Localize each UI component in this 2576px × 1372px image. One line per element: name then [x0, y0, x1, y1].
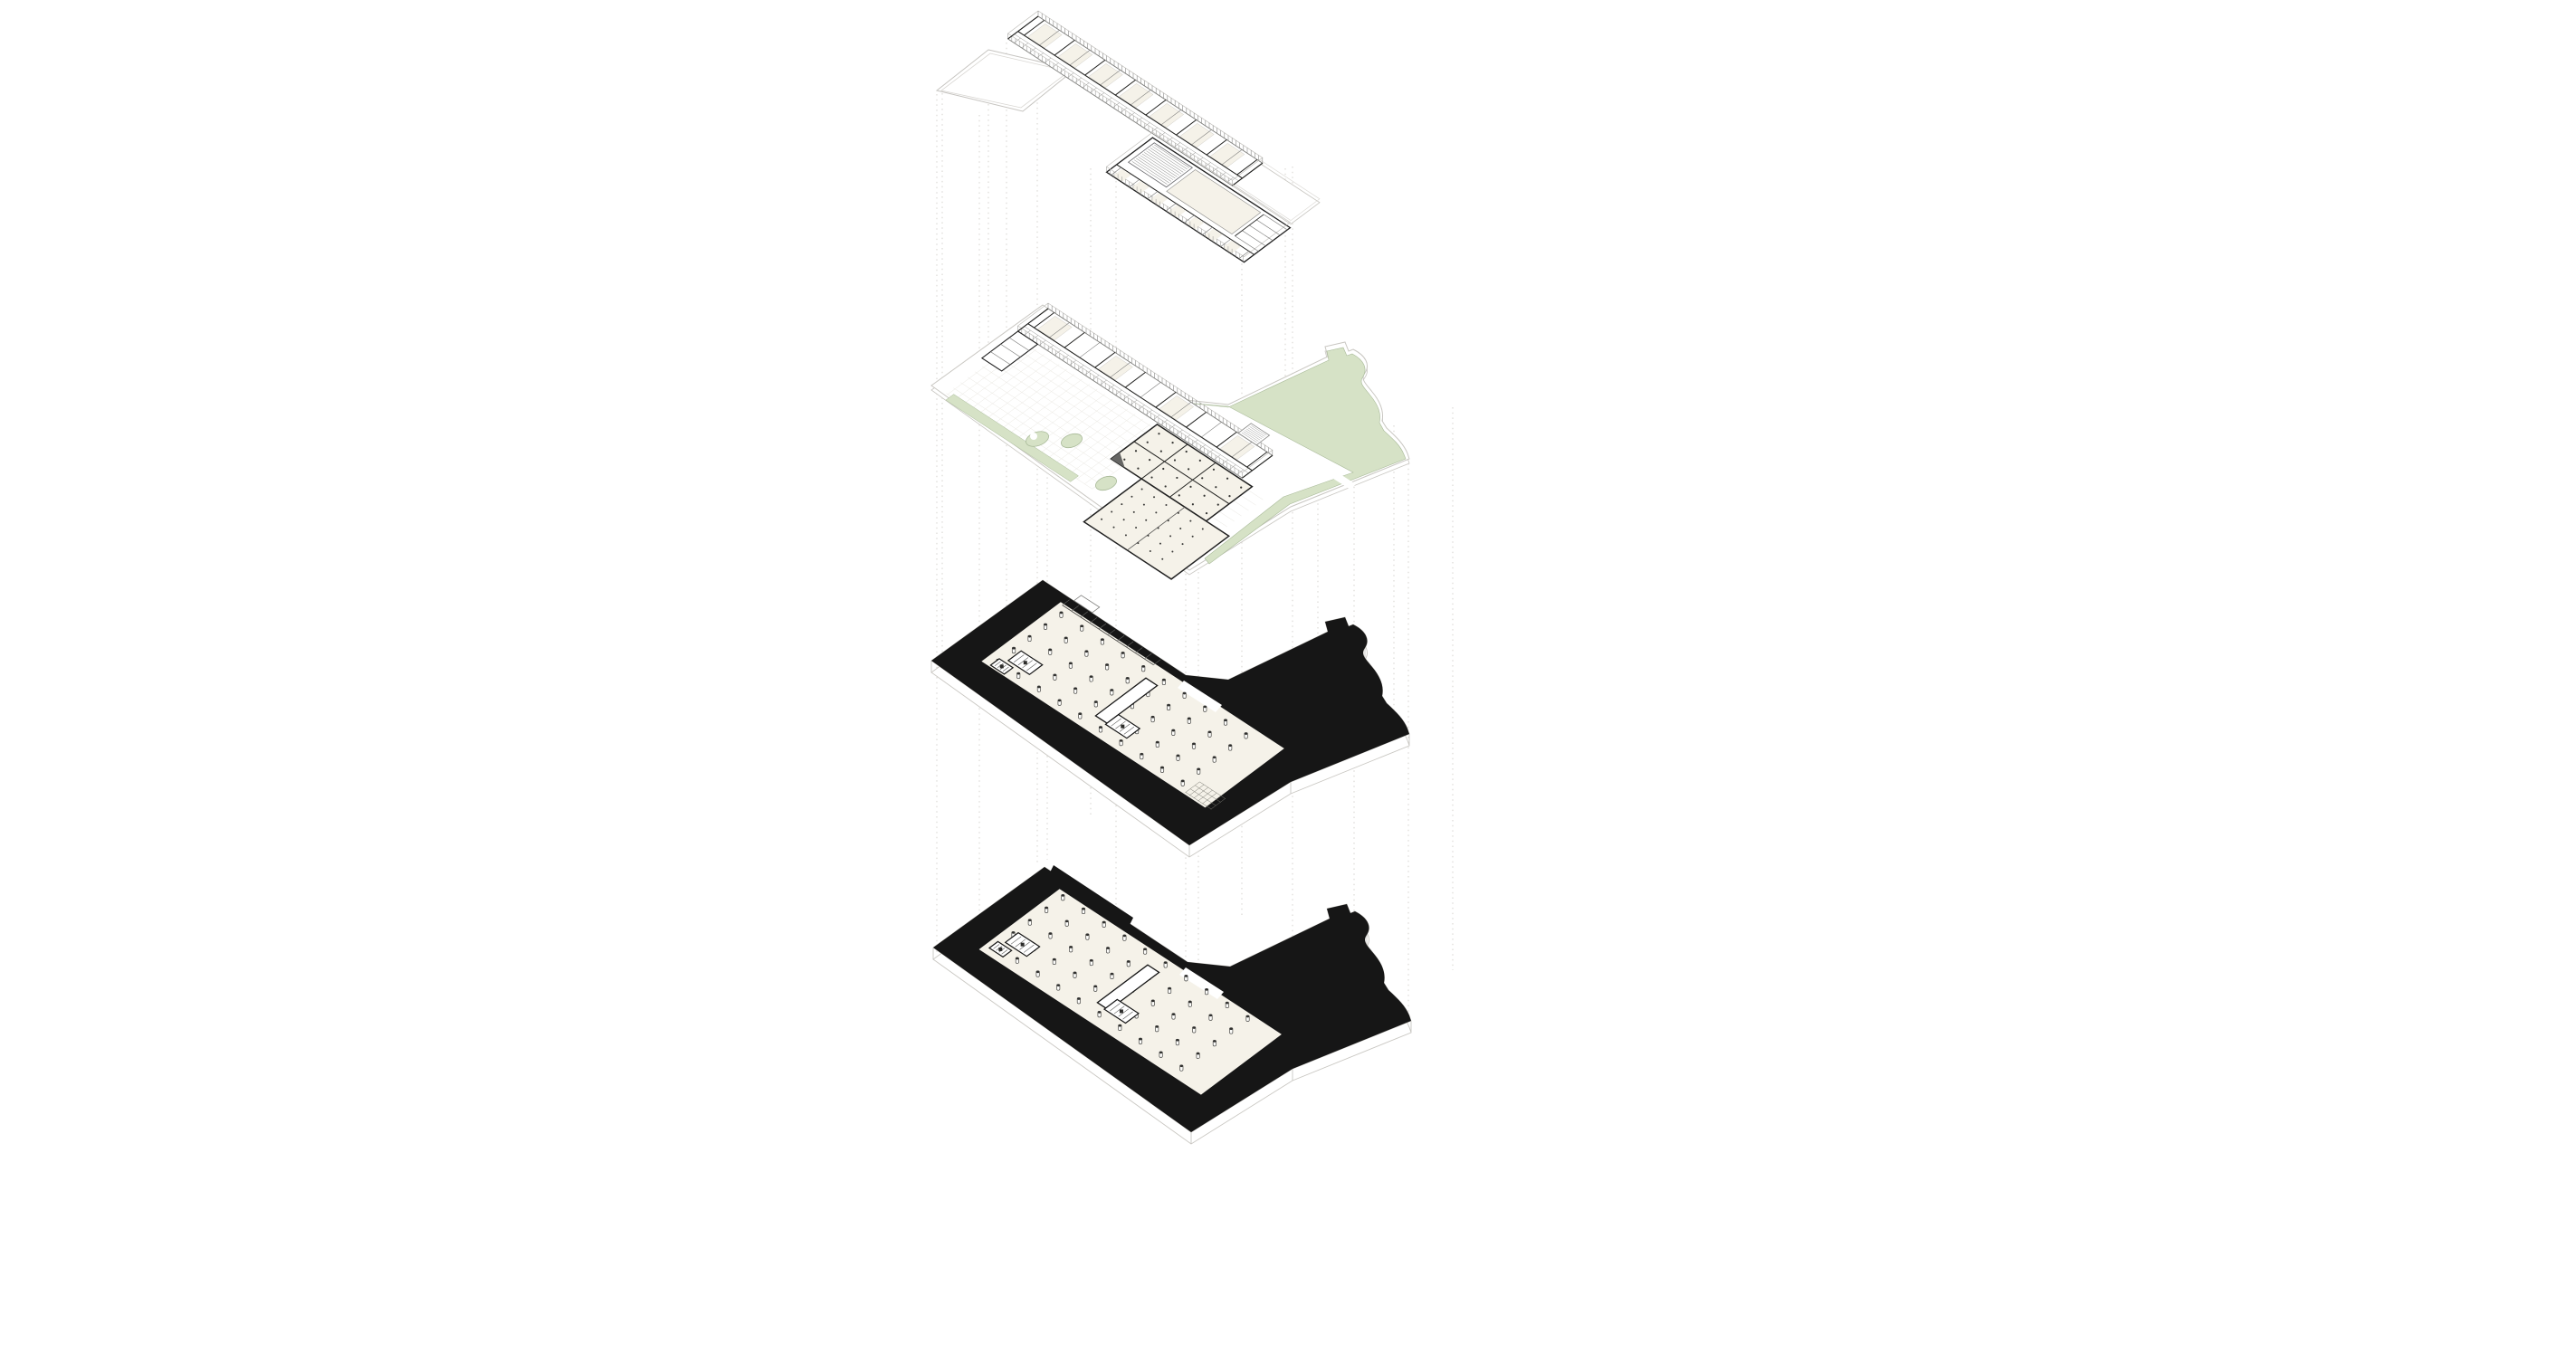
basement-2-plan	[933, 865, 1411, 1144]
drawing-canvas	[0, 0, 2576, 1372]
upper-floor-plan	[937, 11, 1320, 262]
basement-1-plan	[931, 580, 1409, 857]
ground-floor-plan	[931, 303, 1409, 579]
exploded-axonometric-drawing	[0, 0, 2576, 1372]
